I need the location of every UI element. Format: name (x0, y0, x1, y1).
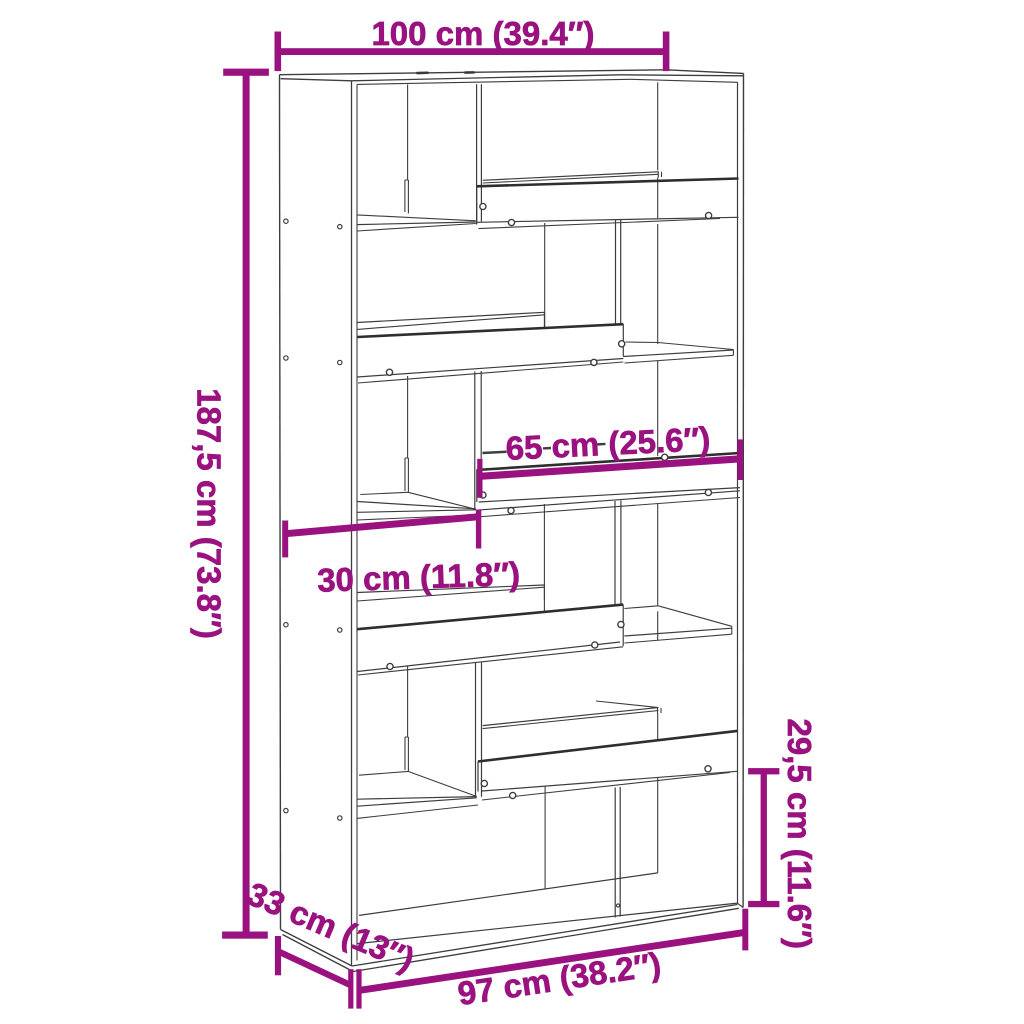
svg-text:30 cm (11.8″): 30 cm (11.8″) (317, 555, 521, 599)
svg-text:187,5 cm (73.8″): 187,5 cm (73.8″) (191, 388, 228, 639)
svg-text:100 cm (39.4″): 100 cm (39.4″) (371, 15, 594, 52)
svg-text:29,5 cm (11.6″): 29,5 cm (11.6″) (781, 718, 818, 948)
